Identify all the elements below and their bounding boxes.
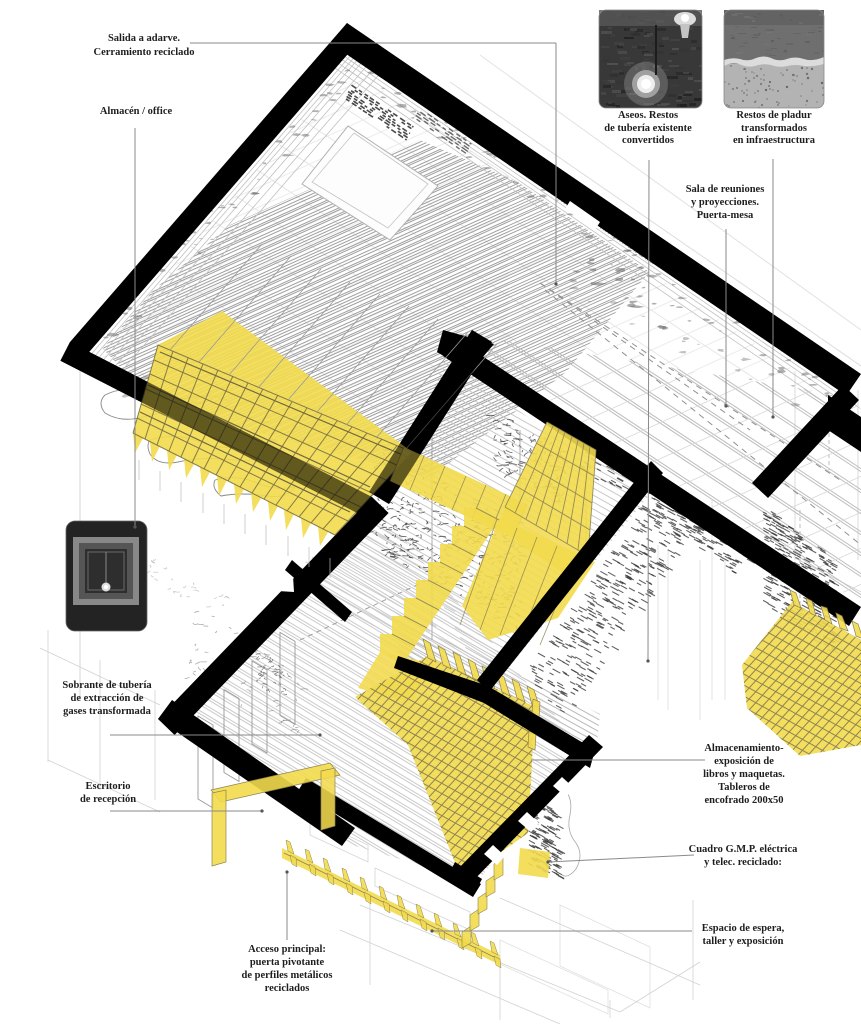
svg-text:y proyecciones.: y proyecciones. [691, 197, 759, 208]
svg-text:de extracción de: de extracción de [71, 693, 144, 704]
svg-text:taller y exposición: taller y exposición [703, 936, 784, 947]
svg-text:puerta pivotante: puerta pivotante [250, 957, 325, 968]
svg-text:convertidos: convertidos [622, 135, 674, 146]
svg-text:Espacio de espera,: Espacio de espera, [702, 923, 785, 934]
svg-text:gases transformada: gases transformada [63, 706, 152, 717]
svg-text:transformados: transformados [741, 123, 807, 134]
svg-text:de perfiles metálicos: de perfiles metálicos [242, 970, 333, 981]
svg-text:Cerramiento reciclado: Cerramiento reciclado [94, 47, 195, 58]
svg-text:Aseos. Restos: Aseos. Restos [618, 110, 678, 121]
svg-text:y telec. reciclado:: y telec. reciclado: [704, 857, 782, 868]
svg-text:Escritorio: Escritorio [86, 781, 131, 792]
svg-text:Cuadro G.M.P. eléctrica: Cuadro G.M.P. eléctrica [689, 844, 799, 855]
svg-text:exposición de: exposición de [714, 756, 774, 767]
svg-text:Almacén / office: Almacén / office [100, 106, 173, 117]
svg-text:Tableros de: Tableros de [718, 782, 770, 793]
svg-text:Salida a adarve.: Salida a adarve. [108, 33, 180, 44]
svg-text:Restos de pladur: Restos de pladur [736, 110, 812, 121]
svg-text:de recepción: de recepción [80, 794, 136, 805]
svg-text:encofrado 200x50: encofrado 200x50 [704, 795, 783, 806]
svg-text:de tubería existente: de tubería existente [604, 123, 692, 134]
svg-text:Almacenamiento-: Almacenamiento- [704, 743, 784, 754]
svg-text:en infraestructura: en infraestructura [733, 135, 816, 146]
svg-text:Sala de reuniones: Sala de reuniones [686, 184, 765, 195]
svg-text:Sobrante de tubería: Sobrante de tubería [62, 680, 152, 691]
svg-text:Puerta-mesa: Puerta-mesa [697, 210, 754, 221]
svg-text:reciclados: reciclados [265, 983, 310, 994]
svg-text:Acceso principal:: Acceso principal: [248, 944, 326, 955]
svg-text:libros y maquetas.: libros y maquetas. [703, 769, 785, 780]
